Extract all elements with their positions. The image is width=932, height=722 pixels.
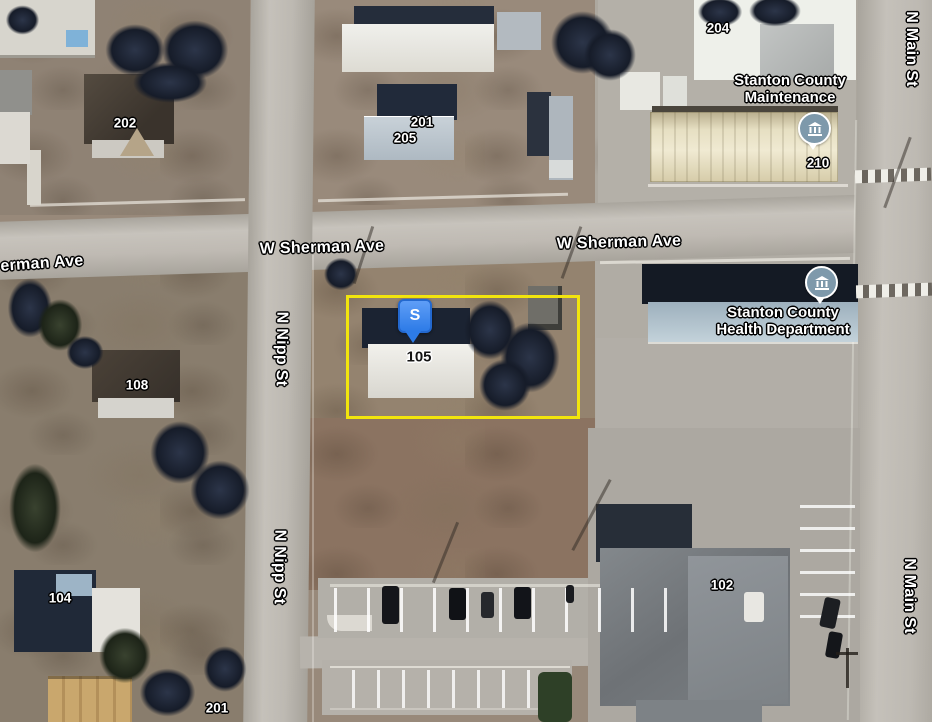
parcel-outline: [346, 295, 580, 419]
satellite-map[interactable]: S erman Ave W Sherman Ave W Sherman Ave …: [0, 0, 932, 722]
tree: [0, 0, 45, 40]
columns-glyph: [807, 122, 823, 136]
poi-icon-tail: [815, 297, 825, 304]
car: [449, 588, 466, 620]
poi-label-line1: Stanton County: [734, 72, 846, 89]
address-label-204: 204: [707, 21, 730, 36]
columns-glyph: [814, 276, 830, 290]
building-gable-dark: [527, 92, 551, 156]
map-pin-letter: S: [410, 307, 421, 325]
government-building-icon[interactable]: [805, 266, 838, 299]
tree: [0, 448, 70, 568]
poi-icon-tail: [808, 143, 818, 150]
car: [382, 586, 399, 624]
tree: [60, 330, 110, 375]
tree: [575, 20, 645, 90]
street-label-main-south: N Main St: [900, 558, 918, 634]
map-pin-tail: [405, 331, 421, 343]
car: [566, 585, 574, 603]
white-shed-2: [663, 76, 687, 106]
curb: [648, 184, 848, 187]
tree: [180, 450, 260, 530]
street-label-main-north: N Main St: [902, 11, 920, 87]
government-building-icon[interactable]: [798, 112, 831, 145]
building-gray-shed: [497, 12, 541, 50]
poi-label-line2: Maintenance: [734, 89, 846, 106]
road-main-st: [848, 0, 932, 722]
car: [481, 592, 494, 618]
curb: [330, 666, 570, 668]
street-label-nipp-south: N Nipp St: [270, 530, 289, 605]
building-left-edge-wall: [0, 112, 30, 164]
building-left-edge-roof: [0, 70, 32, 115]
building-top-center-white: [342, 24, 494, 72]
address-label-201-bottom: 201: [206, 701, 229, 716]
curb: [312, 255, 314, 722]
tree: [130, 660, 205, 722]
street-label-sherman-center: W Sherman Ave: [260, 237, 385, 258]
building-102-wing: [688, 556, 788, 704]
curb: [330, 708, 570, 710]
car: [514, 587, 531, 619]
poi-label-maintenance: Stanton County Maintenance: [734, 72, 846, 106]
address-label-210: 210: [807, 156, 830, 171]
blue-shed: [66, 30, 88, 47]
poi-label-line2: Health Department: [716, 321, 849, 338]
tree: [120, 55, 220, 110]
car-white: [744, 592, 764, 622]
address-label-108: 108: [126, 378, 149, 393]
address-label-102: 102: [711, 578, 734, 593]
address-label-201-top: 201: [411, 115, 434, 130]
building-102-ext: [636, 700, 762, 722]
street-label-sherman-east: W Sherman Ave: [557, 232, 682, 253]
building-gable-white: [549, 160, 573, 178]
tree: [196, 638, 254, 700]
block-dirt-lot: [305, 418, 605, 590]
poi-label-health-department: Stanton County Health Department: [716, 304, 849, 338]
address-label-105-parcel: 105: [406, 349, 431, 366]
health-dept-pad: [596, 338, 858, 438]
crosswalk-south: [856, 283, 932, 299]
poi-label-line1: Stanton County: [716, 304, 849, 321]
utility-pole-crossarm: [836, 652, 858, 655]
building-top-center-roofband: [354, 6, 494, 26]
parking-stripes-south: [352, 670, 552, 708]
address-label-205: 205: [394, 131, 417, 146]
map-pin-marker[interactable]: S: [398, 299, 432, 333]
street-label-nipp-north: N Nipp St: [272, 312, 291, 387]
address-label-202: 202: [114, 116, 137, 131]
address-label-104: 104: [49, 591, 72, 606]
